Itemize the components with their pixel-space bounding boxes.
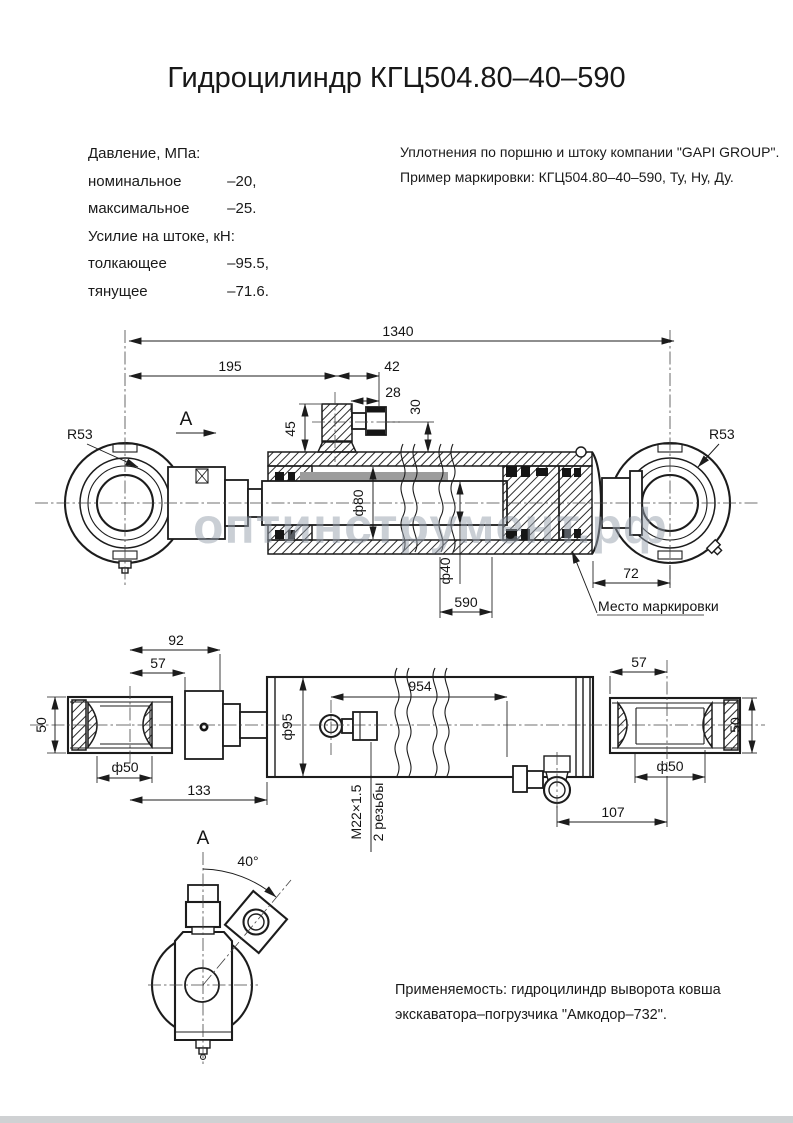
spec-label: номинальное: [88, 168, 223, 196]
dia-rod-label: ф40: [437, 557, 453, 584]
end-view-body: [152, 932, 252, 1040]
application-line: экскаватора–погрузчика "Амкодор–732".: [395, 1003, 721, 1028]
dim-954: 954: [408, 678, 432, 694]
spec-row: номинальное –20,: [88, 168, 269, 196]
spec-label: толкающее: [88, 250, 223, 278]
view-arrow-label: A: [180, 409, 193, 430]
seal-note-line: Уплотнения по поршню и штоку компании "G…: [400, 140, 779, 165]
dim-overall-length: 1340: [382, 323, 413, 339]
dia-50-left: ф50: [111, 759, 138, 775]
dim-42: 42: [384, 358, 400, 374]
application-note: Применяемость: гидроцилиндр выворота ков…: [395, 978, 721, 1027]
spec-value: –25.: [227, 200, 256, 217]
dim-72: 72: [623, 565, 639, 581]
spec-value: –95.5,: [227, 255, 269, 272]
dim-195: 195: [218, 358, 242, 374]
spec-value: –20,: [227, 173, 256, 190]
spec-row: максимальное –25.: [88, 195, 269, 223]
dia-bore-label: ф80: [350, 489, 366, 516]
dim-45: 45: [282, 421, 298, 437]
force-header: Усилие на штоке, кН:: [88, 223, 269, 251]
dim-30: 30: [407, 399, 423, 415]
marking-note: Место маркировки: [598, 598, 719, 614]
dim-133: 133: [187, 782, 211, 798]
spec-row: тянущее –71.6.: [88, 278, 269, 306]
dim-107: 107: [601, 804, 625, 820]
dim-590: 590: [454, 594, 478, 610]
spec-value: –71.6.: [227, 283, 269, 300]
side-plan-view: 92 57 50 ф50 133 ф95 М22×1.5 2 резьбы 95: [0, 630, 793, 840]
dim-57-left: 57: [150, 655, 166, 671]
view-a-label: A: [197, 828, 210, 849]
spec-label: максимальное: [88, 195, 223, 223]
port-fitting-top: [318, 404, 386, 452]
drawing-title: Гидроцилиндр КГЦ504.80–40–590: [0, 62, 793, 95]
seal-notes: Уплотнения по поршню и штоку компании "G…: [400, 140, 779, 189]
spec-block: Давление, МПа: номинальное –20, максимал…: [88, 140, 269, 305]
dia-95: ф95: [279, 713, 295, 740]
application-line: Применяемость: гидроцилиндр выворота ков…: [395, 978, 721, 1003]
dim-57-right: 57: [631, 654, 647, 670]
dim-50-left: 50: [33, 717, 49, 733]
dia-50-right: ф50: [656, 758, 683, 774]
view-a: 40° A: [130, 820, 365, 1075]
thread-count-label: 2 резьбы: [370, 783, 386, 842]
radius-label-left: R53: [67, 426, 93, 442]
bleed-ball: [576, 447, 586, 457]
spec-row: толкающее –95.5,: [88, 250, 269, 278]
drawing-page: Гидроцилиндр КГЦ504.80–40–590 Давление, …: [0, 0, 793, 1123]
dim-92: 92: [168, 632, 184, 648]
dim-50-right: 50: [727, 717, 743, 733]
angle-40: 40°: [237, 853, 258, 869]
main-section-view: 1340 195 42 28 30 45 R53 R53 ф80 ф40: [0, 305, 793, 625]
dim-28: 28: [385, 384, 401, 400]
marking-example-line: Пример маркировки: КГЦ504.80–40–590, Ту,…: [400, 165, 779, 190]
spec-label: тянущее: [88, 278, 223, 306]
page-bottom-edge: [0, 1116, 793, 1123]
pressure-header: Давление, МПа:: [88, 140, 269, 168]
radius-label-right: R53: [709, 426, 735, 442]
cylinder-barrel-section: [262, 447, 601, 554]
right-eye-side: [610, 698, 740, 753]
